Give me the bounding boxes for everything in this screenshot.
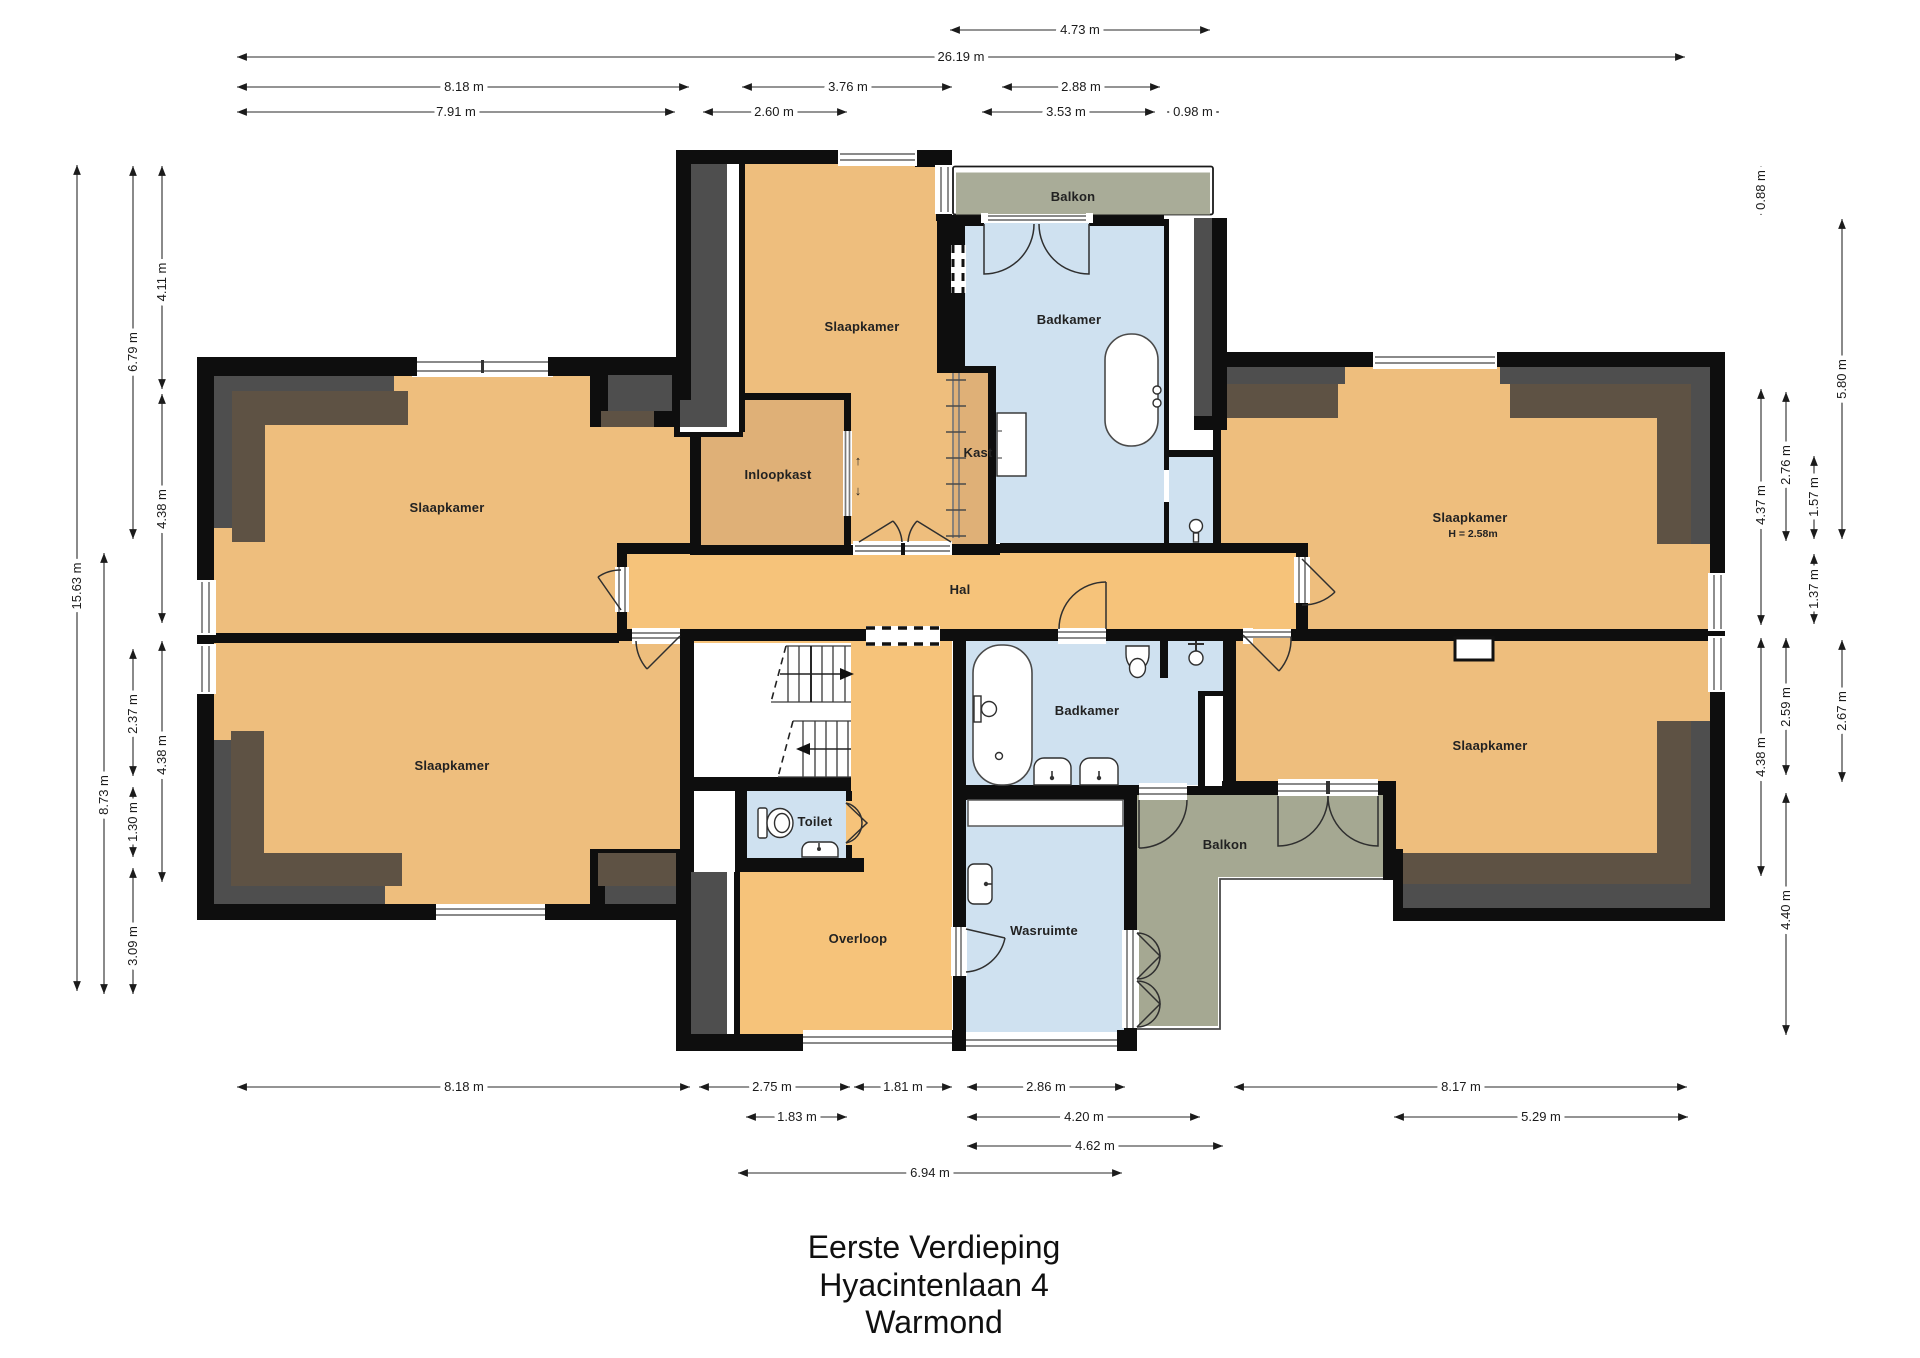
svg-text:4.40 m: 4.40 m: [1778, 890, 1793, 930]
svg-text:6.94 m: 6.94 m: [910, 1165, 950, 1180]
svg-text:Slaapkamer: Slaapkamer: [415, 758, 490, 773]
svg-text:Slaapkamer: Slaapkamer: [410, 500, 485, 515]
svg-text:8.17 m: 8.17 m: [1441, 1079, 1481, 1094]
svg-text:5.80 m: 5.80 m: [1834, 359, 1849, 399]
svg-text:Toilet: Toilet: [798, 814, 833, 829]
svg-text:2.67 m: 2.67 m: [1834, 691, 1849, 731]
svg-text:Balkon: Balkon: [1051, 189, 1096, 204]
svg-text:8.73 m: 8.73 m: [96, 775, 111, 815]
svg-text:H = 2.58m: H = 2.58m: [1448, 528, 1497, 540]
svg-text:2.86 m: 2.86 m: [1026, 1079, 1066, 1094]
svg-text:2.88 m: 2.88 m: [1061, 79, 1101, 94]
svg-text:Kast: Kast: [964, 445, 993, 460]
svg-text:4.38 m: 4.38 m: [154, 489, 169, 529]
svg-text:7.91 m: 7.91 m: [436, 104, 476, 119]
svg-text:Badkamer: Badkamer: [1055, 703, 1119, 718]
svg-text:15.63 m: 15.63 m: [69, 563, 84, 610]
svg-text:6.79 m: 6.79 m: [125, 332, 140, 372]
svg-text:1.57 m: 1.57 m: [1806, 477, 1821, 517]
svg-text:0.88 m: 0.88 m: [1753, 170, 1768, 210]
svg-text:2.60 m: 2.60 m: [754, 104, 794, 119]
svg-text:4.38 m: 4.38 m: [154, 735, 169, 775]
svg-text:Slaapkamer: Slaapkamer: [825, 319, 900, 334]
svg-text:Slaapkamer: Slaapkamer: [1453, 738, 1528, 753]
svg-text:2.37 m: 2.37 m: [125, 694, 140, 734]
svg-text:4.11 m: 4.11 m: [154, 263, 169, 302]
svg-text:Eerste Verdieping: Eerste Verdieping: [808, 1229, 1061, 1265]
svg-text:Hal: Hal: [950, 582, 971, 597]
svg-text:0.98 m: 0.98 m: [1173, 104, 1213, 119]
svg-text:3.76 m: 3.76 m: [828, 79, 868, 94]
svg-text:↓: ↓: [855, 483, 862, 498]
svg-text:8.18 m: 8.18 m: [444, 1079, 484, 1094]
svg-text:↑: ↑: [855, 453, 862, 468]
svg-text:Balkon: Balkon: [1203, 837, 1248, 852]
svg-text:4.37 m: 4.37 m: [1753, 485, 1768, 525]
svg-text:Inloopkast: Inloopkast: [744, 467, 811, 482]
svg-text:5.29 m: 5.29 m: [1521, 1109, 1561, 1124]
svg-text:1.30 m: 1.30 m: [125, 802, 140, 842]
svg-text:Overloop: Overloop: [829, 931, 888, 946]
svg-text:4.38 m: 4.38 m: [1753, 737, 1768, 777]
svg-text:4.73 m: 4.73 m: [1060, 22, 1100, 37]
svg-text:26.19 m: 26.19 m: [938, 49, 985, 64]
svg-text:1.37 m: 1.37 m: [1806, 569, 1821, 609]
svg-text:Warmond: Warmond: [865, 1304, 1003, 1340]
svg-text:Wasruimte: Wasruimte: [1010, 923, 1078, 938]
svg-text:2.59 m: 2.59 m: [1778, 687, 1793, 727]
svg-text:2.75 m: 2.75 m: [752, 1079, 792, 1094]
svg-text:3.53 m: 3.53 m: [1046, 104, 1086, 119]
svg-text:Badkamer: Badkamer: [1037, 312, 1101, 327]
svg-text:2.76 m: 2.76 m: [1778, 445, 1793, 485]
svg-text:4.20 m: 4.20 m: [1064, 1109, 1104, 1124]
svg-text:3.09 m: 3.09 m: [125, 926, 140, 966]
svg-text:8.18 m: 8.18 m: [444, 79, 484, 94]
svg-text:1.81 m: 1.81 m: [883, 1079, 923, 1094]
svg-text:Hyacintenlaan 4: Hyacintenlaan 4: [819, 1267, 1048, 1303]
svg-text:Slaapkamer: Slaapkamer: [1433, 510, 1508, 525]
svg-text:1.83 m: 1.83 m: [777, 1109, 817, 1124]
svg-text:4.62 m: 4.62 m: [1075, 1138, 1115, 1153]
